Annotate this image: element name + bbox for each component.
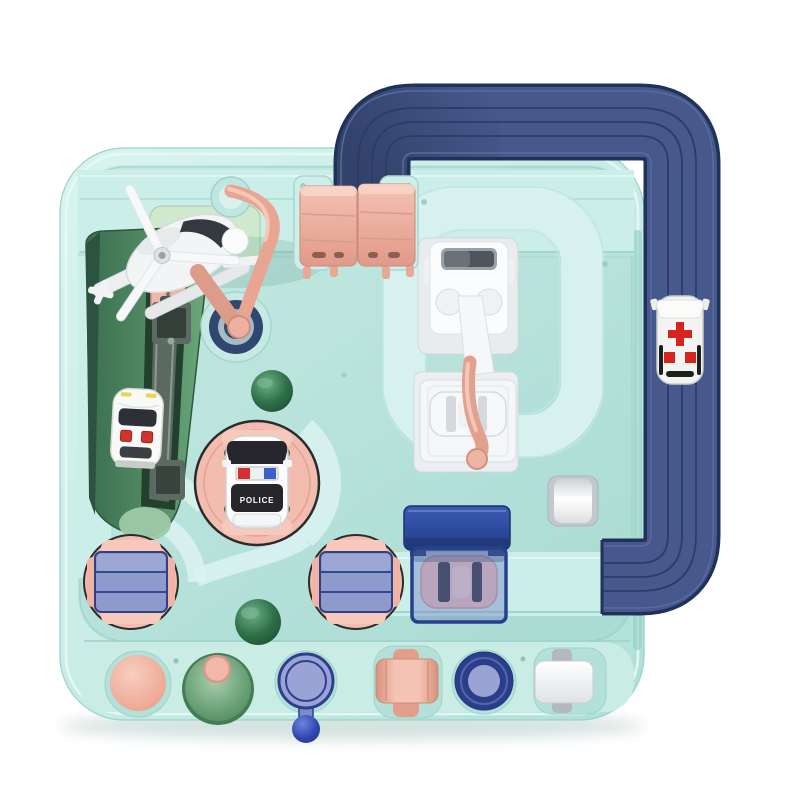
bridge-flap-left bbox=[300, 186, 357, 266]
lever-knob bbox=[292, 715, 320, 743]
green-dome-lower bbox=[235, 599, 281, 645]
navy-ring-button bbox=[455, 652, 513, 710]
white-race-car bbox=[110, 388, 164, 470]
police-car-label: POLICE bbox=[240, 496, 275, 505]
green-cone-button bbox=[182, 653, 254, 725]
windshield bbox=[118, 408, 157, 427]
police-car: POLICE bbox=[222, 436, 292, 528]
police-hood bbox=[227, 441, 288, 464]
product-photo: POLICE bbox=[0, 0, 800, 800]
striped-turntable-left bbox=[84, 535, 178, 629]
bridge-flap-right bbox=[358, 184, 415, 266]
police-car-turntable: POLICE bbox=[195, 421, 319, 545]
toy-scene: POLICE bbox=[0, 0, 800, 800]
lightbar-red bbox=[238, 468, 250, 479]
pink-dome-button bbox=[110, 655, 166, 711]
lightbar-blue bbox=[264, 468, 276, 479]
striped-turntable-center bbox=[309, 535, 403, 629]
ambulance bbox=[650, 296, 710, 384]
green-dome-upper bbox=[251, 370, 293, 412]
blue-slide bbox=[404, 506, 510, 622]
white-roller-button-upper bbox=[548, 476, 598, 526]
